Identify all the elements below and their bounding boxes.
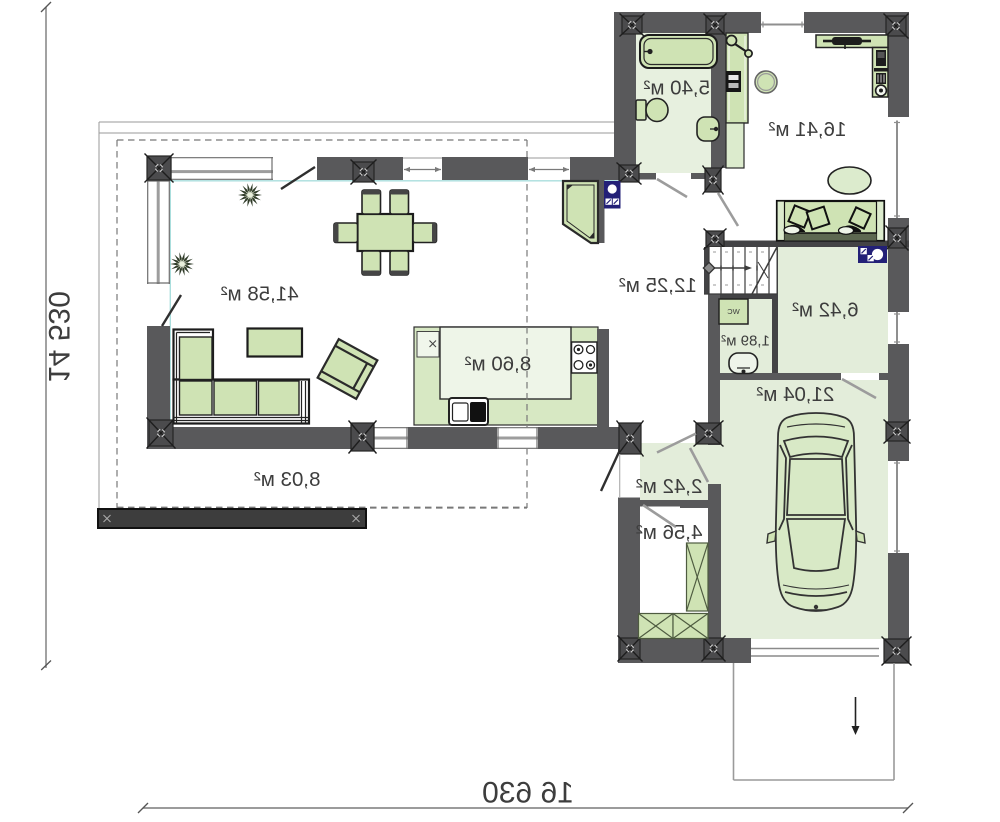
svg-text:1,89 м²: 1,89 м² xyxy=(721,333,770,350)
svg-text:8,60 м²: 8,60 м² xyxy=(465,353,532,376)
svg-text:5,40 м²: 5,40 м² xyxy=(643,77,710,100)
svg-text:2,42 м²: 2,42 м² xyxy=(636,475,703,498)
svg-text:14 530: 14 530 xyxy=(42,291,75,383)
svg-text:16 630: 16 630 xyxy=(482,777,574,810)
svg-text:16,41 м²: 16,41 м² xyxy=(768,118,846,141)
svg-text:41,58 м²: 41,58 м² xyxy=(221,283,299,306)
svg-text:21,04 м²: 21,04 м² xyxy=(756,383,834,406)
svg-text:4,56 м²: 4,56 м² xyxy=(636,521,703,544)
svg-text:6,42 м²: 6,42 м² xyxy=(792,299,859,322)
svg-text:WC: WC xyxy=(727,307,740,316)
svg-text:8,03 м²: 8,03 м² xyxy=(254,468,321,491)
svg-text:12,25 м²: 12,25 м² xyxy=(619,274,697,297)
